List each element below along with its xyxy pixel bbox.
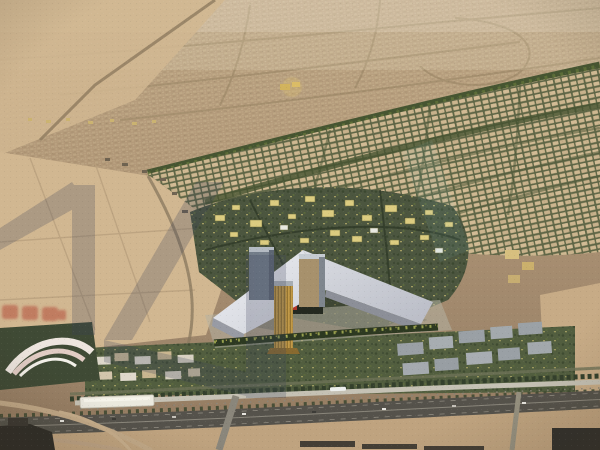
aerial-render xyxy=(0,0,600,450)
scene-svg xyxy=(0,0,600,450)
vignette xyxy=(0,0,600,450)
